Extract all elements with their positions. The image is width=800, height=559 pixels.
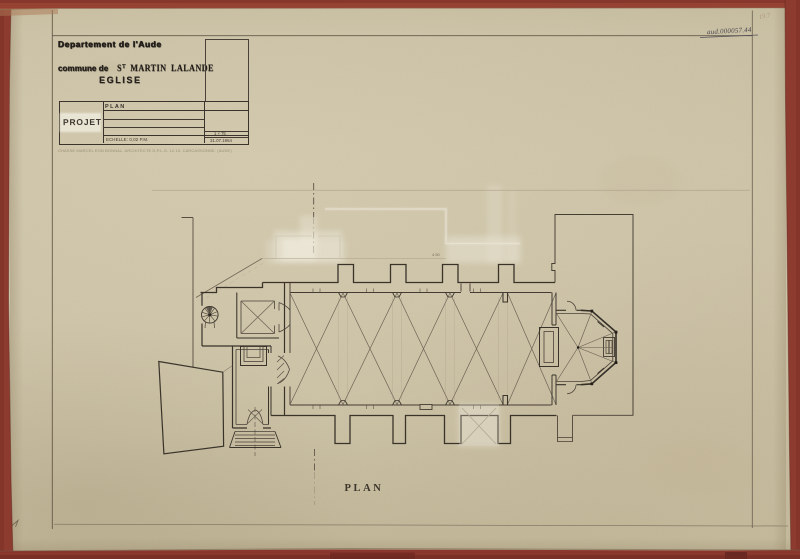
svg-text:4.50: 4.50 <box>432 252 441 257</box>
